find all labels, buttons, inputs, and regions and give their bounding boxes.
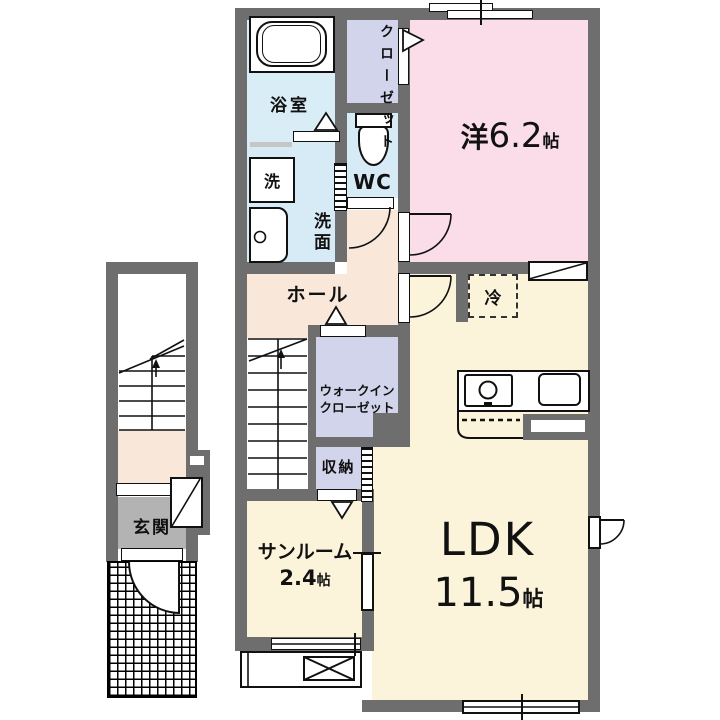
walk-in-closet-label: ウォークイン クローゼット [317,381,397,419]
wic-line2: クローゼット [319,400,394,417]
wall [235,8,247,651]
storage-label: 収納 [315,455,362,477]
window-diagonal-cupboard [528,261,588,281]
refrigerator-label: 冷 [468,276,518,316]
wall-ext [186,262,198,450]
window-western-top-pane2 [447,10,533,19]
western-room-size: 6.2 [488,116,542,156]
ldk-label: LDK [420,510,555,568]
window-sunroom-ldk [361,553,374,611]
storage-accordion-door [361,447,373,502]
window-sunroom-bottom [271,638,361,650]
closet-label: クローゼット [351,24,395,102]
wc-door-bar [347,197,394,209]
ldk-door-jamb [398,273,410,323]
ldk-side-door-arc [600,520,624,544]
bathroom-door-bar [293,131,340,142]
ext-landing-floor [118,430,186,483]
ext-stairs-area [118,274,186,430]
sunroom-unit: 帖 [317,570,331,590]
kitchen-stove [538,373,581,406]
bathtub-inner [262,25,321,63]
ldk-unit: 帖 [523,583,544,613]
western-room-unit: 帖 [543,127,560,152]
sunroom-label: サンルーム [248,537,362,563]
wall-ext [106,262,198,274]
ldk-size-label: 11.5帖 [416,570,561,620]
closet-door-bar [398,28,409,85]
ldk-size: 11.5 [433,570,522,616]
bathroom-sill [250,142,292,147]
balcony-equipment-box [303,656,355,681]
bathroom-label: 浴室 [259,92,321,114]
room-hall-floor-upper [347,210,398,274]
ldk-side-door-jamb [588,516,601,549]
western-room-door-jamb [398,212,410,262]
stairs-area [247,338,308,489]
hall-label: ホール [286,281,350,305]
ext-wall-slot [190,456,204,465]
entrance-door-bar [121,548,183,561]
wic-door-bar [320,325,366,337]
washer-label: 洗 [249,166,295,194]
wic-line1: ウォークイン [319,383,394,400]
sunroom-size-label: 2.4帖 [248,566,362,594]
wall [308,437,373,447]
wall-fridge-stub [456,262,468,322]
western-room-label: 洋6.2帖 [440,116,580,162]
washroom-accordion-door [334,163,347,211]
window-ldk-bottom [462,700,580,714]
sunroom-size: 2.4 [279,566,316,590]
wall [588,8,600,712]
wc-label: WC [349,170,396,194]
kitchen-pass-slot [531,420,585,432]
entrance-label: 玄関 [118,505,186,545]
floor-plan: 浴室 洗 洗面 WC クローゼット 洋6.2帖 ホール ウォークイン クローゼッ… [0,0,720,720]
vanity-basin [249,207,288,263]
washroom-label: 洗面 [301,198,333,268]
storage-door-bar [317,489,357,501]
western-room-name: 洋 [460,116,488,156]
wall-ext [106,262,118,562]
kitchen-sink [464,374,513,407]
wall-ext [186,535,198,562]
